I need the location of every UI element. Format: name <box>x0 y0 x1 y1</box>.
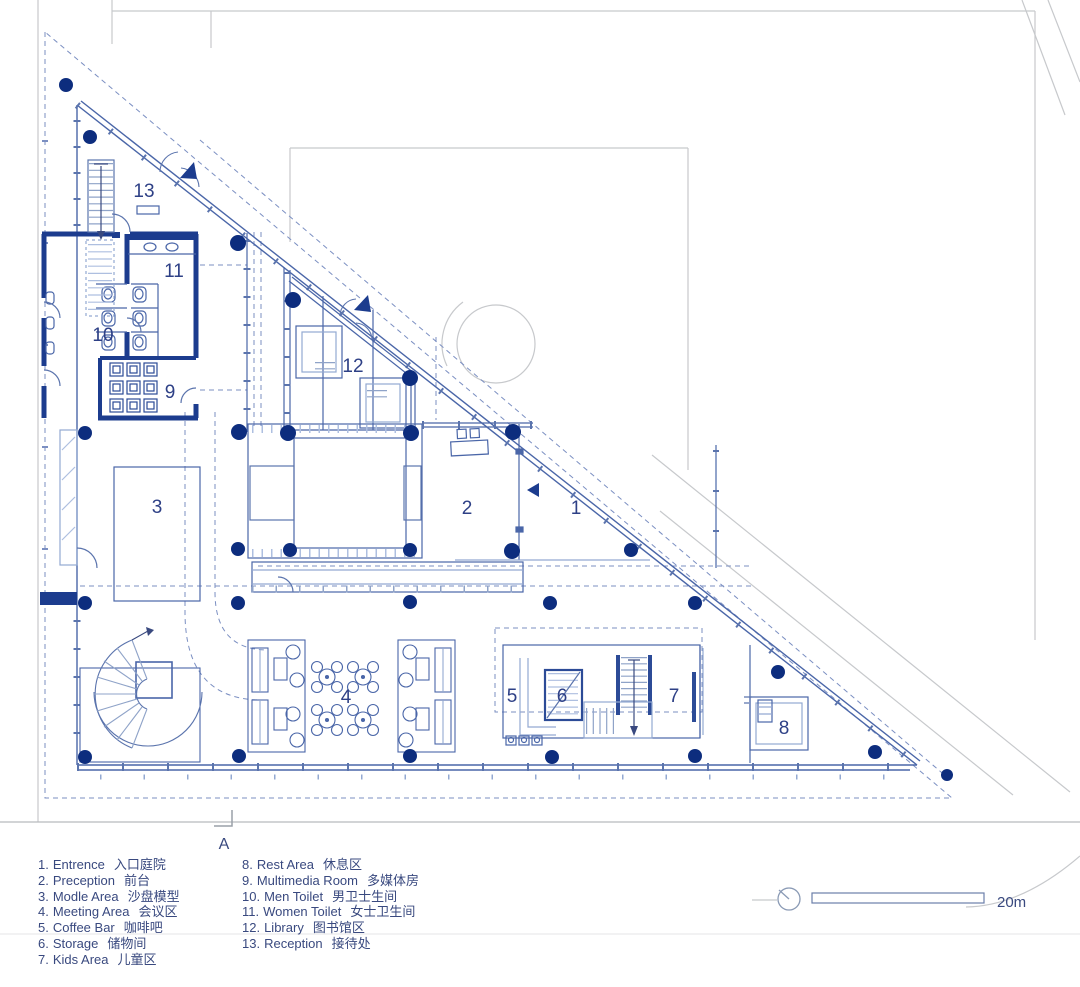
rest-area-room-8 <box>744 645 808 763</box>
room-label-11: 11 <box>164 261 184 282</box>
sofa-group-left <box>248 640 305 752</box>
legend-column-1: 1.Entrence入口庭院 2.Preception前台 3.Modle Ar… <box>38 857 180 968</box>
room-label-1: 1 <box>571 498 582 519</box>
legend-item-7: 7.Kids Area儿童区 <box>38 952 180 968</box>
legend-item-12: 12.Library图书馆区 <box>242 920 419 936</box>
spiral-stair-area <box>80 627 202 762</box>
structural-columns <box>59 78 953 781</box>
legend-item-8: 8.Rest Area休息区 <box>242 857 419 873</box>
core-block-walls <box>40 232 198 605</box>
legend-item-2: 2.Preception前台 <box>38 873 180 889</box>
scale-bar <box>812 893 984 903</box>
room-label-5: 5 <box>507 686 518 707</box>
room-label-8: 8 <box>779 718 790 739</box>
main-stair <box>584 655 652 738</box>
sofa-group-right <box>398 640 455 752</box>
spiral-treads <box>94 640 147 748</box>
section-label: A <box>219 836 230 853</box>
reception-desk-13 <box>137 206 159 214</box>
room-label-6: 6 <box>557 686 568 707</box>
entrance-arrow-icon <box>354 295 371 312</box>
reception-desk <box>450 428 488 456</box>
room-label-2: 2 <box>462 498 473 519</box>
legend-item-11: 11.Women Toilet女士卫生间 <box>242 904 419 920</box>
legend-item-1: 1.Entrence入口庭院 <box>38 857 180 873</box>
core-block-details <box>44 160 196 412</box>
floor-plan-page: 1 2 3 4 5 6 7 8 9 10 11 12 13 A 20m 1.En… <box>0 0 1080 987</box>
room-label-4: 4 <box>341 687 352 708</box>
legend-item-6: 6.Storage储物间 <box>38 936 180 952</box>
legend-item-3: 3.Modle Area沙盘模型 <box>38 889 180 905</box>
model-area-room-3 <box>60 430 200 601</box>
room-label-9: 9 <box>165 382 176 403</box>
multimedia-seats <box>110 363 157 412</box>
scale-label: 20m <box>997 894 1026 911</box>
legend-item-4: 4.Meeting Area会议区 <box>38 904 180 920</box>
floor-plan-drawing: 1 2 3 4 5 6 7 8 9 10 11 12 13 A 20m <box>0 0 1080 987</box>
room-label-10: 10 <box>92 325 113 346</box>
sink-fixtures <box>128 243 196 254</box>
room-label-13: 13 <box>133 181 154 202</box>
room-label-3: 3 <box>152 497 163 518</box>
library-room-12 <box>284 267 415 433</box>
library-stair-box-1 <box>296 326 342 378</box>
building-shell <box>77 101 920 777</box>
legend-item-5: 5.Coffee Bar咖啡吧 <box>38 920 180 936</box>
coffee-stools <box>506 736 542 745</box>
scale-bar-group: 20m <box>778 888 1026 911</box>
section-marker: A <box>214 810 232 853</box>
library-stair-box-2 <box>360 378 406 428</box>
legend-item-9: 9.Multimedia Room多媒体房 <box>242 873 419 889</box>
entrance-arrow-icon <box>180 162 197 179</box>
entrance-court <box>422 423 716 568</box>
central-atrium <box>248 424 523 592</box>
entrance-arrow-icon <box>527 483 539 497</box>
meeting-area-room-4 <box>248 640 455 752</box>
legend-item-10: 10.Men Toilet男卫士生间 <box>242 889 419 905</box>
canopy-dashed-outline <box>45 32 952 798</box>
stair-north <box>86 160 114 316</box>
room-label-7: 7 <box>669 686 680 707</box>
legend-column-2: 8.Rest Area休息区 9.Multimedia Room多媒体房 10.… <box>242 857 419 952</box>
room-label-12: 12 <box>342 356 363 377</box>
kids-display-board <box>692 672 696 722</box>
legend-item-13: 13.Reception接待处 <box>242 936 419 952</box>
